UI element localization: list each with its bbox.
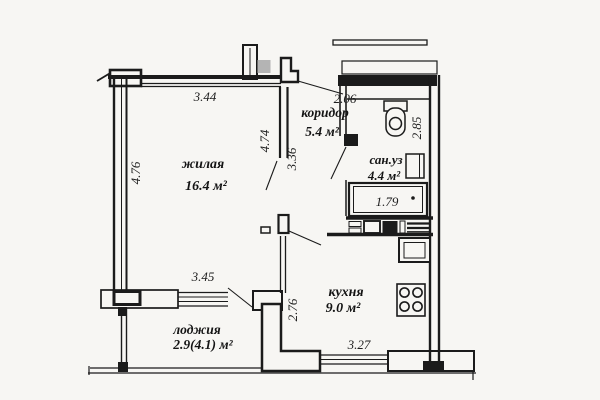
dim-corridor-wall: 3.36 xyxy=(284,147,299,171)
dim-corridor-top-width: 2.06 xyxy=(334,91,357,106)
bathtub-drain-dot xyxy=(411,196,415,200)
shaft-cell xyxy=(349,228,361,233)
toilet-bowl xyxy=(386,108,405,136)
living-room-area: 16.4 м² xyxy=(185,179,228,194)
bathroom-door-swing xyxy=(331,147,346,179)
outer-thin-band xyxy=(342,61,437,74)
toilet-icon xyxy=(384,101,407,136)
wall-foot xyxy=(423,361,444,371)
entry-jamb-block xyxy=(281,58,298,82)
shaft-cell xyxy=(349,222,361,227)
dim-kitchen-bottom-width: 3.27 xyxy=(347,337,371,352)
balcony-door-swing xyxy=(228,288,252,307)
floor-plan-page: жилая 16.4 м² коридор 5.4 м² сан.уз 4.4 … xyxy=(0,0,600,400)
wall-piece xyxy=(279,215,289,233)
bathroom-top-wall xyxy=(338,75,437,86)
shaft-cell xyxy=(400,221,405,233)
sink-icon xyxy=(399,238,430,262)
kitchen-fixtures xyxy=(397,238,430,316)
cabinet-body xyxy=(406,154,424,178)
shaft-cell xyxy=(364,221,380,233)
corridor-label: коридор xyxy=(301,105,349,120)
entry-door-mark xyxy=(258,60,271,73)
loggia-label: лоджия xyxy=(172,322,221,337)
shaft-cell-solid xyxy=(383,221,398,233)
outer-thin-bar xyxy=(333,40,427,45)
door-stop-tick xyxy=(261,227,270,233)
wall-post xyxy=(118,307,127,316)
dim-bathroom-side-height: 2.85 xyxy=(409,116,424,139)
corridor-area: 5.4 м² xyxy=(305,124,339,139)
dim-kitchen-side-height: 2.76 xyxy=(285,298,300,321)
bathroom-label: сан.уз xyxy=(369,152,402,167)
kitchen-area: 9.0 м² xyxy=(326,301,362,316)
kitchen-door-swing xyxy=(289,231,321,245)
dim-bathtub-length: 1.79 xyxy=(376,194,399,209)
living-room-label: жилая xyxy=(182,157,225,172)
wall-step xyxy=(344,134,358,146)
wall-post xyxy=(118,362,128,372)
dim-living-left-height: 4.76 xyxy=(128,161,143,184)
dim-living-inner-wall: 4.74 xyxy=(257,129,272,152)
bathroom-area: 4.4 м² xyxy=(367,168,401,183)
plumbing-shaft-band xyxy=(327,218,433,235)
window-assembly-living-loggia xyxy=(101,288,282,310)
stove-icon xyxy=(397,284,425,316)
kitchen-label: кухня xyxy=(328,285,363,300)
top-wall-structure xyxy=(97,45,343,94)
floor-plan-drawing: жилая 16.4 м² коридор 5.4 м² сан.уз 4.4 … xyxy=(0,0,600,400)
loggia-area: 2.9(4.1) м² xyxy=(172,337,233,352)
living-door-swing xyxy=(266,161,277,190)
wall-column xyxy=(114,292,140,305)
dim-loggia-top-width: 3.45 xyxy=(191,269,215,284)
cabinet-icon xyxy=(406,154,424,178)
dim-living-top-width: 3.44 xyxy=(193,89,217,104)
kitchen-bottom xyxy=(320,351,474,371)
